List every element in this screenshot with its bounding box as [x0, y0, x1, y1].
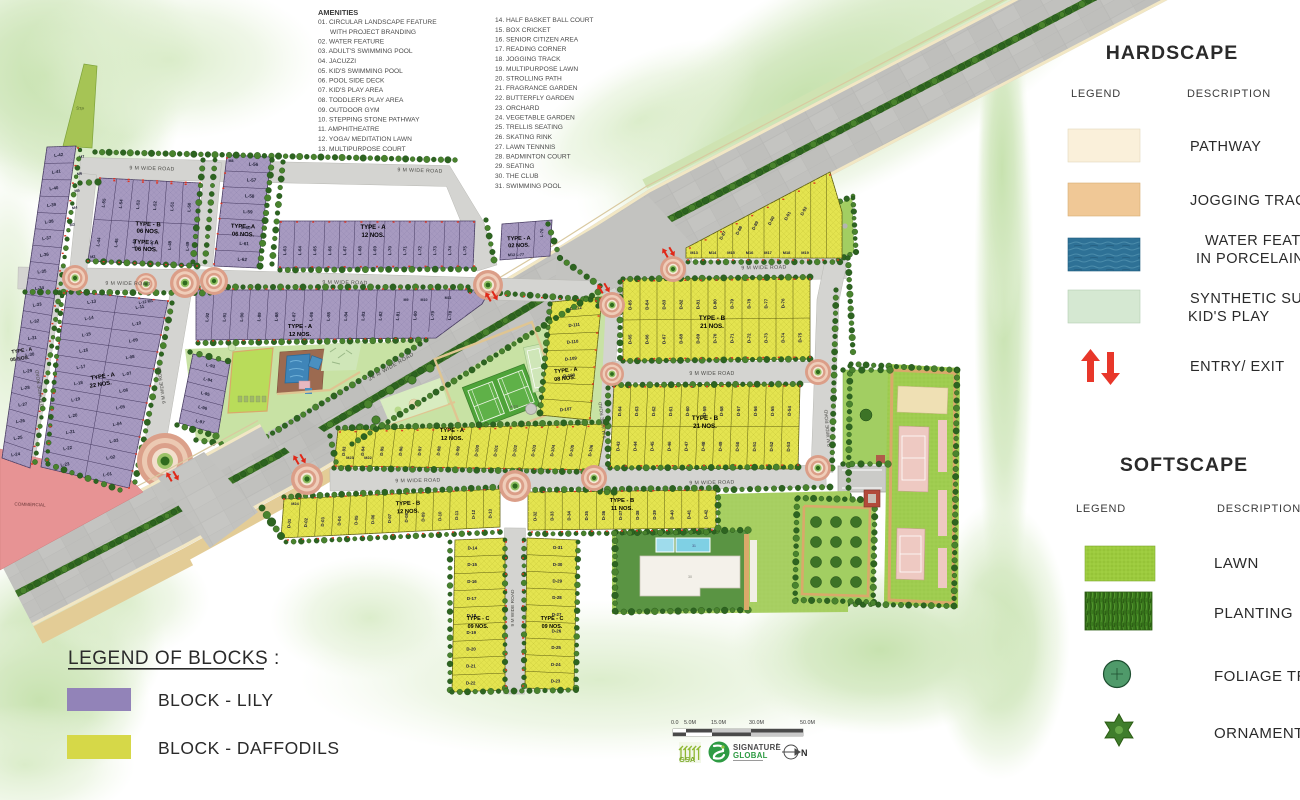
svg-text:06 NOS.: 06 NOS. [134, 247, 158, 254]
svg-text:30. THE CLUB: 30. THE CLUB [495, 173, 539, 180]
svg-text:N: N [801, 748, 808, 758]
svg-text:D-12: D-12 [471, 509, 476, 519]
svg-text:9 M WIDE ROAD: 9 M WIDE ROAD [395, 478, 440, 485]
svg-text:L-83: L-83 [360, 311, 366, 321]
svg-text:L-61: L-61 [239, 241, 249, 246]
svg-text:L-59: L-59 [243, 209, 253, 214]
svg-text:D-82: D-82 [679, 299, 684, 309]
svg-text:D-06: D-06 [370, 514, 375, 524]
svg-text:TYPE - A: TYPE - A [507, 236, 531, 243]
svg-text:D-41: D-41 [686, 509, 691, 519]
svg-text:D-24: D-24 [551, 662, 561, 667]
svg-text:TYPE - B: TYPE - B [610, 498, 634, 504]
svg-text:D-56: D-56 [753, 406, 758, 416]
svg-text:M19: M19 [801, 250, 809, 255]
svg-text:D-69: D-69 [696, 333, 701, 343]
svg-text:23. ORCHARD: 23. ORCHARD [495, 105, 540, 112]
svg-text:D-60: D-60 [685, 406, 690, 416]
svg-text:L-73: L-73 [432, 245, 437, 255]
svg-text:11. AMPHITHEATRE: 11. AMPHITHEATRE [318, 126, 380, 133]
svg-text:07. KID'S PLAY AREA: 07. KID'S PLAY AREA [318, 87, 384, 94]
svg-text:9 M WIDE ROAD: 9 M WIDE ROAD [510, 589, 516, 627]
svg-text:D-51: D-51 [752, 441, 757, 451]
svg-text:D-20: D-20 [466, 647, 476, 652]
svg-text:L-56: L-56 [249, 162, 259, 167]
svg-text:WATER FEATURE: WATER FEATURE [1205, 233, 1300, 249]
svg-text:18. JOGGING TRACK: 18. JOGGING TRACK [495, 56, 561, 63]
svg-text:D-02: D-02 [303, 517, 309, 527]
svg-text:09 NOS.: 09 NOS. [468, 624, 489, 630]
svg-text:D-35: D-35 [584, 510, 589, 520]
svg-text:29. SEATING: 29. SEATING [495, 163, 534, 170]
svg-text:L-51: L-51 [169, 201, 175, 211]
svg-text:D-65: D-65 [628, 334, 633, 344]
svg-text:26. SKATING RINK: 26. SKATING RINK [495, 134, 553, 141]
svg-text:M15: M15 [727, 250, 735, 255]
svg-text:D-71: D-71 [730, 333, 735, 343]
svg-text:D-28: D-28 [552, 595, 562, 600]
svg-text:L-92: L-92 [204, 312, 210, 322]
svg-text:9 M WIDE ROAD: 9 M WIDE ROAD [322, 280, 367, 287]
svg-text:D-76: D-76 [781, 298, 786, 308]
svg-text:L-68: L-68 [357, 245, 362, 255]
svg-text:M13: M13 [690, 250, 698, 255]
svg-text:D-78: D-78 [747, 298, 752, 308]
svg-text:11 NOS.: 11 NOS. [611, 506, 633, 512]
svg-text:9 M WIDE ROAD: 9 M WIDE ROAD [689, 371, 734, 377]
svg-text:31. SWIMMING POOL: 31. SWIMMING POOL [495, 183, 562, 190]
svg-text:D-58: D-58 [719, 406, 724, 416]
svg-text:TYPE - B: TYPE - B [699, 315, 726, 322]
svg-text:D-53: D-53 [786, 441, 791, 451]
svg-text:06 NOS.: 06 NOS. [136, 229, 160, 236]
svg-text:5.0M: 5.0M [684, 720, 696, 726]
svg-text:D-63: D-63 [634, 406, 639, 416]
svg-text:LEGEND OF BLOCKS :: LEGEND OF BLOCKS : [68, 648, 280, 669]
svg-text:0.0: 0.0 [671, 720, 679, 726]
svg-text:30: 30 [688, 575, 692, 579]
svg-text:SYNTHETIC SURFACE: SYNTHETIC SURFACE [1190, 291, 1300, 307]
svg-text:TYPE - B: TYPE - B [692, 415, 719, 422]
svg-text:12 NOS.: 12 NOS. [361, 233, 384, 239]
svg-text:M9: M9 [404, 298, 409, 302]
svg-text:D-05: D-05 [353, 515, 358, 525]
svg-text:D-80: D-80 [713, 299, 718, 309]
svg-text:D-16: D-16 [467, 579, 477, 584]
svg-text:D-85: D-85 [628, 300, 633, 310]
svg-text:L-81: L-81 [395, 311, 401, 321]
svg-text:30.0M: 30.0M [749, 720, 764, 726]
svg-text:D-23: D-23 [551, 679, 561, 684]
svg-text:02. WATER FEATURE: 02. WATER FEATURE [318, 39, 385, 46]
svg-text:D-13: D-13 [488, 508, 493, 518]
svg-text:D-62: D-62 [651, 406, 656, 416]
svg-text:01. CIRCULAR LANDSCAPE FEATURE: 01. CIRCULAR LANDSCAPE FEATURE [318, 19, 437, 26]
svg-text:HARDSCAPE: HARDSCAPE [1106, 42, 1239, 64]
svg-text:D-72: D-72 [747, 333, 752, 343]
svg-text:L-74: L-74 [447, 245, 452, 255]
svg-text:D-25: D-25 [551, 645, 561, 650]
svg-text:D-04: D-04 [337, 516, 343, 526]
svg-text:D-11: D-11 [454, 510, 459, 520]
svg-text:L-89: L-89 [256, 312, 262, 322]
svg-text:21. FRAGRANCE GARDEN: 21. FRAGRANCE GARDEN [495, 85, 578, 92]
svg-text:D-79: D-79 [730, 299, 735, 309]
svg-text:D-36: D-36 [601, 510, 606, 520]
svg-text:D-48: D-48 [701, 441, 706, 451]
svg-text:D-38: D-38 [635, 510, 640, 520]
svg-text:25. TRELLIS SEATING: 25. TRELLIS SEATING [495, 124, 563, 131]
svg-text:D-61: D-61 [668, 406, 673, 416]
svg-text:D-39: D-39 [652, 510, 657, 520]
svg-text:L-80: L-80 [412, 310, 418, 320]
svg-text:L-58: L-58 [245, 193, 255, 198]
svg-text:D-32: D-32 [533, 511, 538, 521]
svg-text:D-03: D-03 [320, 516, 326, 526]
svg-text:D-15: D-15 [467, 562, 477, 567]
svg-text:15. BOX CRICKET: 15. BOX CRICKET [495, 27, 551, 34]
svg-text:TYPE - B: TYPE - B [396, 501, 421, 508]
svg-text:M23: M23 [346, 456, 353, 460]
svg-text:D-73: D-73 [764, 333, 769, 343]
svg-text:19. MULTIPURPOSE LAWN: 19. MULTIPURPOSE LAWN [495, 66, 578, 73]
svg-text:L-69: L-69 [372, 245, 377, 255]
svg-text:PLANTING: PLANTING [1214, 605, 1293, 622]
svg-text:L-70: L-70 [387, 245, 392, 255]
svg-text:D-50: D-50 [735, 441, 740, 451]
svg-text:D-42: D-42 [704, 509, 709, 519]
svg-text:D-75: D-75 [798, 332, 803, 342]
svg-text:D-47: D-47 [684, 441, 689, 451]
svg-text:L-67: L-67 [342, 245, 347, 255]
svg-text:L-88: L-88 [274, 312, 280, 322]
svg-text:12 NOS.: 12 NOS. [289, 332, 312, 338]
svg-text:D-31: D-31 [553, 545, 563, 550]
svg-text:ORNAMENTAL: ORNAMENTAL [1214, 725, 1300, 742]
svg-text:D-54: D-54 [787, 406, 792, 416]
svg-text:L-53: L-53 [135, 199, 141, 209]
svg-text:L-87: L-87 [291, 311, 297, 321]
svg-text:M18: M18 [783, 250, 791, 255]
svg-text:TYPE - A: TYPE - A [231, 224, 256, 231]
svg-text:12 NOS.: 12 NOS. [397, 509, 420, 516]
svg-text:TYPE - C: TYPE - C [467, 616, 490, 622]
svg-text:28. BADMINTON COURT: 28. BADMINTON COURT [495, 154, 571, 161]
svg-text:WTR: WTR [510, 405, 519, 409]
svg-text:ENTRY/ EXIT: ENTRY/ EXIT [1190, 359, 1285, 375]
svg-text:M12 L-77: M12 L-77 [508, 253, 524, 258]
svg-text:TYPE - A: TYPE - A [440, 428, 465, 434]
svg-text:TYPE - C: TYPE - C [541, 616, 564, 622]
svg-text:AMENITIES: AMENITIES [318, 8, 358, 17]
svg-text:D-19: D-19 [467, 630, 477, 635]
svg-text:D-01: D-01 [286, 518, 292, 528]
svg-text:L-49: L-49 [185, 241, 190, 251]
svg-text:20. STROLLING PATH: 20. STROLLING PATH [495, 76, 562, 83]
svg-text:M17: M17 [764, 250, 772, 255]
svg-text:L-91: L-91 [222, 312, 228, 322]
svg-text:D-33: D-33 [550, 511, 555, 521]
svg-text:L-66: L-66 [327, 245, 332, 255]
svg-text:02 NOS.: 02 NOS. [508, 243, 530, 250]
svg-text:D-66: D-66 [645, 334, 650, 344]
svg-text:04. JACUZZI: 04. JACUZZI [318, 58, 356, 65]
svg-text:TYPE - A: TYPE - A [360, 225, 386, 231]
svg-text:D-64: D-64 [617, 406, 622, 416]
svg-text:D-17: D-17 [467, 596, 477, 601]
svg-text:L-71: L-71 [402, 245, 407, 255]
svg-text:24. VEGETABLE GARDEN: 24. VEGETABLE GARDEN [495, 115, 575, 122]
svg-text:L-64: L-64 [297, 245, 302, 255]
svg-text:M11: M11 [445, 296, 452, 300]
svg-text:BLOCK - LILY: BLOCK - LILY [158, 690, 274, 710]
svg-text:05. KID'S SWIMMING POOL: 05. KID'S SWIMMING POOL [318, 68, 403, 75]
svg-text:D-67: D-67 [662, 334, 667, 344]
svg-text:L-65: L-65 [312, 245, 317, 255]
svg-text:TYPE - A: TYPE - A [133, 240, 159, 247]
svg-text:12. YOGA/ MEDITATION LAWN: 12. YOGA/ MEDITATION LAWN [318, 136, 412, 143]
svg-text:D-43: D-43 [615, 441, 620, 451]
svg-text:M16: M16 [746, 250, 754, 255]
svg-text:9 M WIDE ROAD: 9 M WIDE ROAD [129, 165, 174, 172]
svg-text:21 NOS.: 21 NOS. [700, 323, 724, 330]
svg-text:10. STEPPING STONE PATHWAY: 10. STEPPING STONE PATHWAY [318, 117, 420, 124]
svg-text:GLOBAL: GLOBAL [733, 751, 768, 760]
svg-text:D-22: D-22 [466, 681, 476, 686]
svg-text:JOGGING TRACK: JOGGING TRACK [1190, 193, 1300, 209]
svg-text:15.0M: 15.0M [711, 720, 726, 726]
svg-text:LEGEND: LEGEND [1071, 88, 1121, 100]
svg-text:M24: M24 [291, 502, 299, 506]
svg-text:L-86: L-86 [308, 311, 314, 321]
svg-text:16. SENIOR CITIZEN AREA: 16. SENIOR CITIZEN AREA [495, 37, 579, 44]
svg-text:TYPE - A: TYPE - A [288, 324, 313, 330]
svg-text:09. OUTDOOR GYM: 09. OUTDOOR GYM [318, 107, 380, 114]
svg-text:L-85: L-85 [326, 311, 332, 321]
svg-text:DESCRIPTION: DESCRIPTION [1217, 503, 1300, 515]
svg-text:D-84: D-84 [645, 299, 650, 309]
svg-text:27. LAWN TENNNIS: 27. LAWN TENNNIS [495, 144, 556, 151]
svg-text:D-55: D-55 [770, 406, 775, 416]
svg-text:LEGEND: LEGEND [1076, 503, 1126, 515]
svg-text:WITH PROJECT BRANDING: WITH PROJECT BRANDING [330, 29, 416, 36]
svg-text:M14: M14 [709, 250, 717, 255]
svg-text:17. READING CORNER: 17. READING CORNER [495, 46, 567, 53]
svg-text:L-63: L-63 [282, 245, 287, 255]
svg-text:KID'S PLAY: KID'S PLAY [1188, 309, 1270, 325]
svg-text:TYPE - B: TYPE - B [135, 222, 161, 229]
svg-text:L-76: L-76 [539, 228, 545, 238]
svg-text:D-45: D-45 [649, 441, 654, 451]
svg-text:D-70: D-70 [713, 333, 718, 343]
svg-text:08. TODDLER'S PLAY AREA: 08. TODDLER'S PLAY AREA [318, 97, 404, 104]
svg-text:M22: M22 [364, 456, 371, 460]
svg-text:9 M WIDE ROAD: 9 M WIDE ROAD [741, 265, 786, 272]
svg-text:9 M WIDE ROAD: 9 M WIDE ROAD [105, 281, 150, 288]
svg-text:09 NOS.: 09 NOS. [542, 624, 563, 630]
svg-text:06 NOS.: 06 NOS. [232, 232, 255, 239]
svg-text:D-44: D-44 [632, 441, 637, 451]
svg-text:D-57: D-57 [736, 406, 741, 416]
svg-text:12 NOS.: 12 NOS. [441, 436, 464, 442]
svg-text:D-29: D-29 [553, 579, 563, 584]
svg-text:D-83: D-83 [662, 299, 667, 309]
svg-text:D-34: D-34 [567, 511, 572, 521]
svg-text:D-07: D-07 [387, 513, 392, 523]
svg-text:L-50: L-50 [186, 202, 191, 212]
svg-text:50.0M: 50.0M [800, 720, 815, 726]
svg-text:21 NOS.: 21 NOS. [693, 423, 717, 430]
svg-text:31: 31 [692, 544, 696, 548]
svg-text:D-09: D-09 [420, 512, 425, 522]
svg-text:D-46: D-46 [667, 441, 672, 451]
svg-text:L-82: L-82 [378, 311, 384, 321]
svg-text:D-68: D-68 [679, 334, 684, 344]
svg-text:®: ® [776, 742, 779, 747]
svg-text:L-84: L-84 [343, 311, 349, 321]
svg-text:FOLIAGE TREE: FOLIAGE TREE [1214, 668, 1300, 685]
svg-text:SOFTSCAPE: SOFTSCAPE [1120, 454, 1248, 476]
svg-text:D-14: D-14 [468, 545, 478, 550]
svg-text:L-48: L-48 [167, 240, 173, 250]
svg-text:D-52: D-52 [769, 441, 774, 451]
svg-text:9 M WIDE ROAD: 9 M WIDE ROAD [689, 480, 734, 487]
svg-text:D-49: D-49 [718, 441, 723, 451]
svg-text:M10: M10 [421, 298, 428, 302]
svg-text:L-75: L-75 [462, 245, 467, 255]
svg-text:D-74: D-74 [781, 332, 786, 342]
svg-text:03. ADULT'S SWIMMING POOL: 03. ADULT'S SWIMMING POOL [318, 48, 413, 55]
svg-text:D-10: D-10 [437, 511, 442, 521]
svg-text:D-77: D-77 [764, 298, 769, 308]
svg-text:L-79: L-79 [430, 310, 436, 320]
svg-text:22. BUTTERFLY GARDEN: 22. BUTTERFLY GARDEN [495, 95, 574, 102]
svg-text:M8: M8 [229, 159, 234, 163]
svg-text:D-40: D-40 [669, 510, 674, 520]
svg-text:D-30: D-30 [553, 562, 563, 567]
svg-text:14. HALF BASKET BALL COURT: 14. HALF BASKET BALL COURT [495, 17, 593, 24]
svg-text:DESCRIPTION: DESCRIPTION [1187, 88, 1271, 100]
svg-text:LAWN: LAWN [1214, 555, 1259, 572]
svg-text:D-81: D-81 [696, 299, 701, 309]
svg-text:13. MULTIPURPOSE COURT: 13. MULTIPURPOSE COURT [318, 146, 406, 153]
svg-text:PATHWAY: PATHWAY [1190, 139, 1261, 155]
svg-text:L-90: L-90 [239, 312, 245, 322]
svg-text:L-62: L-62 [237, 257, 247, 262]
svg-text:L-72: L-72 [417, 245, 422, 255]
svg-text:L-57: L-57 [247, 177, 257, 182]
svg-text:IN PORCELAIN: IN PORCELAIN [1196, 251, 1300, 267]
svg-text:L-78: L-78 [447, 310, 453, 320]
svg-text:D-21: D-21 [466, 664, 476, 669]
svg-text:L-52: L-52 [152, 200, 158, 210]
svg-text:GSA: GSA [679, 755, 696, 764]
svg-text:06. POOL SIDE DECK: 06. POOL SIDE DECK [318, 78, 385, 85]
svg-text:BLOCK - DAFFODILS: BLOCK - DAFFODILS [158, 738, 340, 758]
